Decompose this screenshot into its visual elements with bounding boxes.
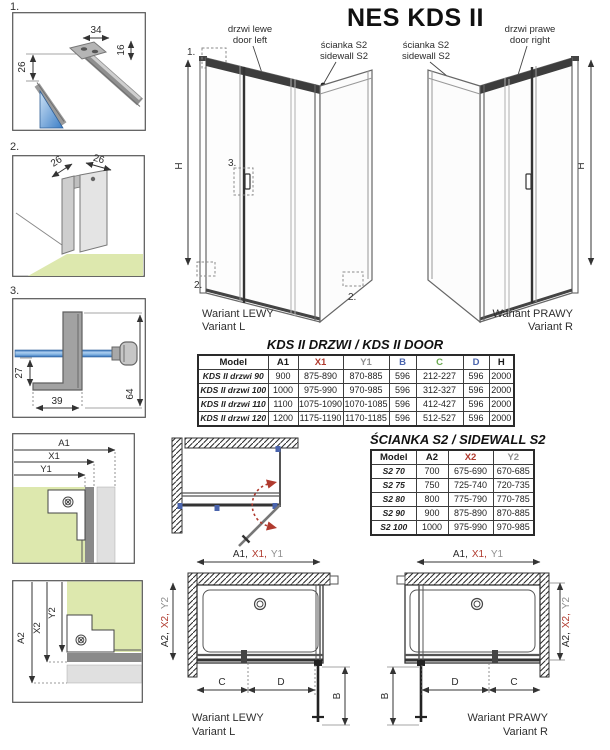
- drain-icon: [255, 599, 266, 610]
- table-row: KDS II drzwi 1001000975-990970-985596312…: [198, 384, 514, 398]
- value-cell: 596: [389, 398, 416, 412]
- value-cell: 975-990: [298, 384, 343, 398]
- value-cell: 870-885: [493, 507, 534, 521]
- model-cell: S2 70: [371, 465, 416, 479]
- value-cell: 775-790: [448, 493, 493, 507]
- column-header: A2: [416, 450, 448, 465]
- column-header: H: [489, 355, 514, 370]
- plan-right-caption-en: Variant R: [503, 726, 548, 738]
- value-cell: 875-890: [298, 370, 343, 384]
- value-cell: 1175-1190: [298, 412, 343, 427]
- model-cell: S2 80: [371, 493, 416, 507]
- drain-icon: [63, 497, 73, 507]
- door-handle: [526, 174, 531, 189]
- value-cell: 596: [463, 412, 489, 427]
- shower-tray: [405, 585, 540, 663]
- detail-drawing-corner-profile: 26 26: [12, 155, 145, 277]
- column-header: C: [416, 355, 463, 370]
- sidewall-table: ModelA2X2Y2S2 70700675-690670-685S2 7575…: [370, 449, 535, 536]
- model-cell: S2 75: [371, 479, 416, 493]
- door-table-title: KDS II DRZWI / KDS II DOOR: [197, 337, 513, 352]
- sidewall-table-title: ŚCIANKA S2 / SIDEWALL S2: [370, 432, 533, 447]
- variant-left-caption-en: Variant L: [202, 321, 245, 333]
- model-cell: S2 100: [371, 521, 416, 536]
- door-swing-plan: [165, 432, 305, 550]
- value-cell: 875-890: [448, 507, 493, 521]
- model-cell: KDS II drzwi 110: [198, 398, 268, 412]
- hatched-wall-top: [405, 573, 540, 585]
- hatched-wall-top: [197, 573, 330, 585]
- value-cell: 870-885: [343, 370, 389, 384]
- value-cell: 596: [389, 384, 416, 398]
- value-cell: 1000: [268, 384, 298, 398]
- bracket-strip: [67, 665, 142, 683]
- value-cell: 1075-1090: [298, 398, 343, 412]
- dim-b-label: B: [380, 692, 391, 699]
- dim-h-label: H: [174, 162, 185, 169]
- table-row: S2 90900875-890870-885: [371, 507, 534, 521]
- value-cell: 770-785: [493, 493, 534, 507]
- sidewall-panel: [320, 70, 372, 322]
- dim-x2: X2,: [160, 613, 171, 628]
- value-cell: 2000: [489, 384, 514, 398]
- value-cell: 720-735: [493, 479, 534, 493]
- dim-x2-label: X2: [32, 622, 43, 634]
- table-row: S2 70700675-690670-685: [371, 465, 534, 479]
- corner-profile-left: [62, 176, 74, 254]
- column-header: B: [389, 355, 416, 370]
- callout-3-label: 3.: [228, 158, 236, 169]
- value-cell: 1100: [268, 398, 298, 412]
- value-cell: 750: [416, 479, 448, 493]
- sidewall-table-section: ŚCIANKA S2 / SIDEWALL S2 ModelA2X2Y2S2 7…: [370, 432, 533, 536]
- dim-a2: A2,: [561, 632, 572, 647]
- dim-a1-label: A1: [58, 438, 70, 449]
- header-row: ModelA2X2Y2: [371, 450, 534, 465]
- value-cell: 2000: [489, 398, 514, 412]
- bracket-strip: [97, 487, 115, 563]
- dim-a1x1y1-label: A1,X1,Y1: [233, 549, 284, 560]
- door-panel: [206, 58, 320, 322]
- variant-right-caption-en: Variant R: [528, 321, 573, 333]
- column-header: X2: [448, 450, 493, 465]
- plan-left-caption-pl: Wariant LEWY: [192, 712, 264, 724]
- value-cell: 670-685: [493, 465, 534, 479]
- dim-c-label: C: [218, 677, 225, 688]
- dim-d-label: D: [277, 677, 284, 688]
- dim-b-label: B: [332, 692, 343, 699]
- value-cell: 675-690: [448, 465, 493, 479]
- detail-plan-a1: A1 X1 Y1: [12, 433, 135, 564]
- column-header: Model: [371, 450, 416, 465]
- variant-left-drawing: drzwi lewe door left ścianka S2 sidewall…: [178, 8, 383, 338]
- dim-a1: A1,: [453, 549, 468, 560]
- dim-39: 39: [51, 396, 63, 407]
- wall-profile-strip: [85, 487, 94, 563]
- variant-left-caption-pl: Wariant LEWY: [202, 308, 274, 320]
- model-cell: KDS II drzwi 100: [198, 384, 268, 398]
- callout-1-label: 1.: [187, 47, 195, 58]
- value-cell: 512-527: [416, 412, 463, 427]
- value-cell: 596: [463, 370, 489, 384]
- variant-right-drawing: ścianka S2 sidewall S2 drzwi prawe door …: [398, 8, 605, 338]
- dim-x1: X1,: [252, 549, 267, 560]
- column-header: X1: [298, 355, 343, 370]
- door-left-label-pl: drzwi lewe: [228, 24, 272, 35]
- dim-y1: Y1: [491, 549, 504, 560]
- table-row: S2 1001000975-990970-985: [371, 521, 534, 536]
- header-row: ModelA1X1Y1BCDH: [198, 355, 514, 370]
- bracket: [178, 503, 183, 509]
- shower-tray: [197, 585, 323, 663]
- bracket: [276, 446, 281, 452]
- sidewall-label-pl: ścianka S2: [321, 40, 367, 51]
- wall-anchor-knob: [120, 342, 137, 365]
- model-cell: S2 90: [371, 507, 416, 521]
- dim-y2: Y2: [160, 596, 171, 609]
- dim-26: 26: [17, 61, 28, 73]
- dim-x1-label: X1: [48, 451, 60, 462]
- value-cell: 900: [416, 507, 448, 521]
- value-cell: 212-227: [416, 370, 463, 384]
- dim-a2-label: A2: [16, 632, 27, 644]
- dim-y1-label: Y1: [40, 464, 52, 475]
- dim-y2-label: Y2: [47, 607, 58, 619]
- door-handle: [245, 174, 250, 189]
- value-cell: 975-990: [448, 521, 493, 536]
- dim-27: 27: [14, 367, 25, 379]
- column-header: Y1: [343, 355, 389, 370]
- value-cell: 700: [416, 465, 448, 479]
- dim-a2: A2,: [160, 632, 171, 647]
- value-cell: 596: [463, 384, 489, 398]
- dim-16: 16: [116, 44, 127, 56]
- detail-plan-a2: A2 X2 Y2: [12, 580, 143, 703]
- dim-34: 34: [90, 25, 102, 36]
- value-cell: 1170-1185: [343, 412, 389, 427]
- door-left-label-en: door left: [233, 35, 268, 46]
- dim-a1x1y1-label: A1,X1,Y1: [453, 549, 504, 560]
- value-cell: 596: [389, 370, 416, 384]
- wall-profile: [572, 58, 578, 293]
- sidewall-label-en: sidewall S2: [402, 51, 450, 62]
- door-right-label-pl: drzwi prawe: [505, 24, 556, 35]
- dim-y1: Y1: [271, 549, 284, 560]
- value-cell: 800: [416, 493, 448, 507]
- dim-a1: A1,: [233, 549, 248, 560]
- detail-3-number: 3.: [10, 285, 19, 297]
- value-cell: 412-427: [416, 398, 463, 412]
- sidewall-label-en: sidewall S2: [320, 51, 368, 62]
- value-cell: 1000: [416, 521, 448, 536]
- model-cell: KDS II drzwi 120: [198, 412, 268, 427]
- bracket: [215, 505, 220, 511]
- value-cell: 1200: [268, 412, 298, 427]
- column-header: Y2: [493, 450, 534, 465]
- spec-sheet: NES KDS II 1. 2. 3. 34 16 26: [0, 0, 610, 750]
- hatched-wall-left: [172, 438, 182, 533]
- open-door: [239, 505, 280, 546]
- value-cell: 900: [268, 370, 298, 384]
- corner-profile-right: [80, 170, 107, 252]
- detail-drawing-bracket: 34 16 26: [12, 12, 146, 131]
- dim-x2: X2,: [561, 613, 572, 628]
- value-cell: 312-327: [416, 384, 463, 398]
- drain-icon: [76, 635, 86, 645]
- callout-2-label: 2.: [348, 292, 356, 303]
- door-panel: [480, 58, 572, 322]
- value-cell: 970-985: [493, 521, 534, 536]
- dim-x1: X1,: [472, 549, 487, 560]
- variant-right-caption-pl: Wariant PRAWY: [493, 308, 574, 320]
- value-cell: 970-985: [343, 384, 389, 398]
- rail-bracket: [492, 650, 498, 663]
- dim-a2x2y2-label: A2,X2,Y2: [561, 596, 572, 647]
- table-row: S2 75750725-740720-735: [371, 479, 534, 493]
- sidewall-label-pl: ścianka S2: [403, 40, 449, 51]
- column-header: Model: [198, 355, 268, 370]
- drain-icon: [472, 599, 483, 610]
- dim-d-label: D: [451, 677, 458, 688]
- door-table-section: KDS II DRZWI / KDS II DOOR ModelA1X1Y1BC…: [197, 337, 513, 427]
- door-right-label-en: door right: [510, 35, 550, 46]
- plan-right-caption-pl: Wariant PRAWY: [468, 712, 549, 724]
- dim-a2x2y2-label: A2,X2,Y2: [160, 596, 171, 647]
- dim-64: 64: [125, 388, 136, 400]
- hatched-wall-top: [185, 438, 298, 448]
- screw-icon: [91, 177, 95, 181]
- hatched-wall-right: [540, 573, 549, 677]
- sidewall-panel: [428, 70, 480, 322]
- value-cell: 2000: [489, 412, 514, 427]
- plan-left-caption-en: Variant L: [192, 726, 235, 738]
- rail-bracket: [241, 650, 247, 663]
- callout-2-label: 2.: [194, 280, 202, 291]
- table-row: KDS II drzwi 90900875-890870-885596212-2…: [198, 370, 514, 384]
- plan-left-drawing: A1,X1,Y1 C D B A2,X2,Y2 Wariant LEWY Var…: [160, 545, 360, 745]
- model-cell: KDS II drzwi 90: [198, 370, 268, 384]
- wall-profile-strip: [67, 653, 142, 662]
- table-row: KDS II drzwi 11011001075-10901070-108559…: [198, 398, 514, 412]
- column-header: D: [463, 355, 489, 370]
- value-cell: 596: [389, 412, 416, 427]
- detail-drawing-support: 27 39 64: [12, 298, 146, 418]
- dim-y2: Y2: [561, 596, 572, 609]
- value-cell: 596: [463, 398, 489, 412]
- wall-profile: [200, 58, 206, 293]
- value-cell: 725-740: [448, 479, 493, 493]
- door-table: ModelA1X1Y1BCDHKDS II drzwi 90900875-890…: [197, 354, 515, 427]
- table-row: KDS II drzwi 12012001175-11901170-118559…: [198, 412, 514, 427]
- detail-2-number: 2.: [10, 141, 19, 153]
- dim-c-label: C: [510, 677, 517, 688]
- column-header: A1: [268, 355, 298, 370]
- value-cell: 2000: [489, 370, 514, 384]
- value-cell: 1070-1085: [343, 398, 389, 412]
- plan-right-drawing: A1,X1,Y1 D C B A2,X2,Y2 Wariant PRAWY Va…: [375, 545, 575, 745]
- hatched-wall-left: [188, 573, 197, 677]
- table-row: S2 80800775-790770-785: [371, 493, 534, 507]
